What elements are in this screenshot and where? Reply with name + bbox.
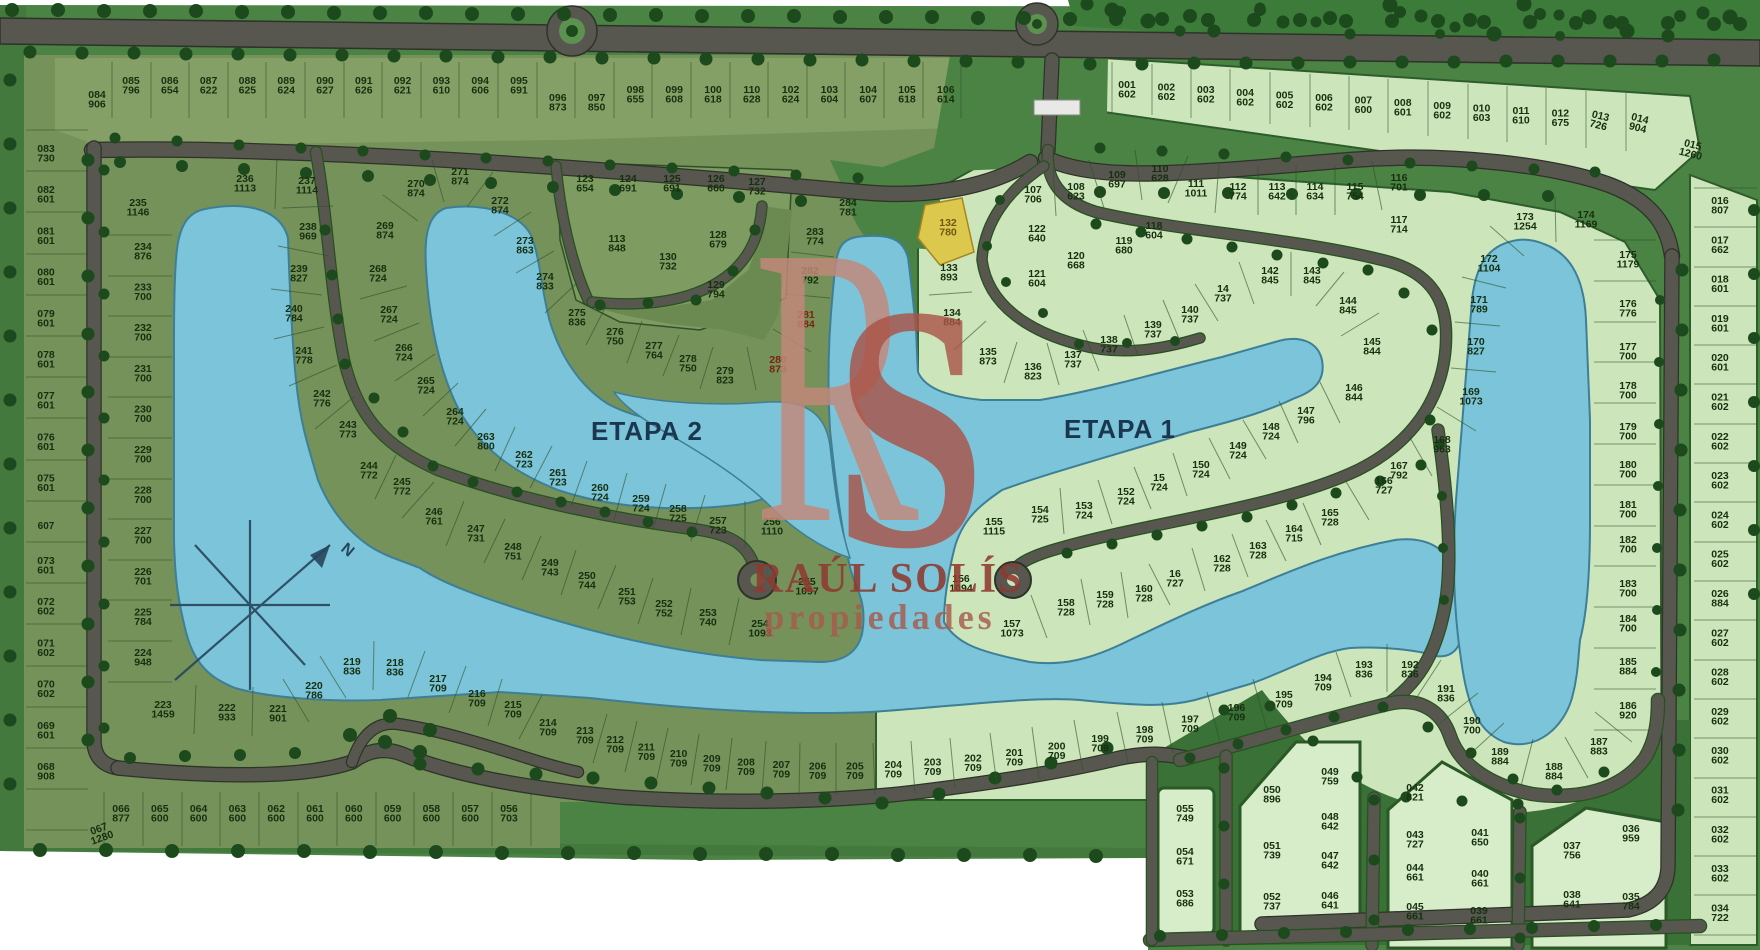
svg-text:1731254: 1731254 — [1513, 211, 1537, 233]
svg-text:168963: 168963 — [1433, 434, 1451, 456]
svg-text:076601: 076601 — [37, 431, 55, 453]
svg-text:064600: 064600 — [190, 803, 208, 825]
svg-text:234876: 234876 — [134, 241, 152, 263]
svg-text:230700: 230700 — [134, 403, 152, 425]
svg-text:215709: 215709 — [504, 699, 522, 721]
svg-text:142845: 142845 — [1261, 265, 1279, 287]
svg-text:065600: 065600 — [151, 803, 169, 825]
svg-text:035784: 035784 — [1622, 891, 1640, 913]
svg-text:113642: 113642 — [1268, 181, 1286, 203]
svg-text:090627: 090627 — [316, 75, 334, 97]
svg-text:184700: 184700 — [1619, 613, 1637, 635]
svg-text:233700: 233700 — [134, 282, 152, 304]
svg-text:088625: 088625 — [239, 75, 257, 97]
svg-text:059600: 059600 — [384, 803, 402, 825]
svg-text:242776: 242776 — [313, 388, 331, 410]
svg-text:012675: 012675 — [1552, 108, 1570, 130]
svg-text:054671: 054671 — [1176, 846, 1194, 868]
svg-text:276750: 276750 — [606, 326, 624, 348]
svg-text:1551115: 1551115 — [983, 516, 1005, 538]
svg-text:009602: 009602 — [1433, 100, 1451, 122]
svg-text:243773: 243773 — [339, 419, 357, 441]
svg-text:024602: 024602 — [1711, 509, 1729, 531]
svg-text:082601: 082601 — [37, 184, 55, 206]
svg-text:201709: 201709 — [1006, 747, 1024, 769]
svg-text:182700: 182700 — [1619, 534, 1637, 556]
svg-text:114634: 114634 — [1306, 181, 1324, 203]
svg-text:008601: 008601 — [1394, 97, 1412, 119]
svg-text:045661: 045661 — [1406, 901, 1424, 923]
svg-text:202709: 202709 — [964, 752, 982, 774]
svg-text:097850: 097850 — [588, 92, 606, 114]
svg-text:2371114: 2371114 — [296, 175, 318, 197]
svg-text:055749: 055749 — [1176, 803, 1194, 825]
svg-text:245772: 245772 — [393, 476, 411, 498]
svg-text:261723: 261723 — [549, 467, 567, 489]
svg-text:095691: 095691 — [510, 75, 528, 97]
svg-text:077601: 077601 — [37, 390, 55, 412]
svg-text:029602: 029602 — [1711, 706, 1729, 728]
svg-text:188884: 188884 — [1545, 761, 1563, 783]
svg-text:167792: 167792 — [1390, 460, 1408, 482]
svg-text:196709: 196709 — [1228, 702, 1246, 724]
svg-text:110628: 110628 — [743, 84, 761, 106]
svg-text:033602: 033602 — [1711, 863, 1729, 885]
svg-text:239827: 239827 — [290, 263, 308, 285]
svg-text:propiedades: propiedades — [764, 597, 995, 637]
svg-text:032602: 032602 — [1711, 824, 1729, 846]
svg-text:198709: 198709 — [1136, 724, 1154, 746]
svg-text:091626: 091626 — [355, 75, 373, 97]
svg-text:228700: 228700 — [134, 485, 152, 507]
svg-text:160728: 160728 — [1135, 583, 1153, 605]
svg-text:117714: 117714 — [1390, 214, 1408, 236]
svg-text:085796: 085796 — [122, 75, 140, 97]
svg-text:266724: 266724 — [395, 342, 413, 364]
svg-text:1751179: 1751179 — [1617, 249, 1640, 271]
svg-text:124691: 124691 — [619, 173, 637, 195]
svg-text:252752: 252752 — [655, 598, 673, 620]
svg-text:179700: 179700 — [1619, 421, 1637, 443]
svg-text:060600: 060600 — [345, 803, 363, 825]
svg-text:096873: 096873 — [549, 92, 567, 114]
svg-text:241778: 241778 — [295, 345, 313, 367]
svg-text:094606: 094606 — [471, 75, 489, 97]
svg-text:084906: 084906 — [88, 89, 106, 111]
svg-text:227700: 227700 — [134, 525, 152, 547]
svg-text:069601: 069601 — [37, 720, 55, 742]
svg-text:244772: 244772 — [360, 460, 378, 482]
svg-text:278750: 278750 — [679, 353, 697, 375]
svg-text:002602: 002602 — [1158, 82, 1176, 104]
svg-text:058600: 058600 — [423, 803, 441, 825]
svg-text:229700: 229700 — [134, 444, 152, 466]
svg-text:027602: 027602 — [1711, 627, 1729, 649]
svg-text:265724: 265724 — [417, 375, 435, 397]
svg-text:149724: 149724 — [1229, 440, 1247, 462]
svg-text:021602: 021602 — [1711, 392, 1729, 414]
svg-text:066877: 066877 — [112, 803, 130, 825]
svg-text:051739: 051739 — [1263, 840, 1281, 862]
svg-text:107706: 107706 — [1024, 184, 1042, 206]
svg-text:207709: 207709 — [773, 759, 791, 781]
svg-text:263800: 263800 — [477, 431, 495, 453]
svg-text:106614: 106614 — [937, 84, 955, 106]
svg-text:102624: 102624 — [782, 84, 800, 106]
svg-text:018601: 018601 — [1711, 274, 1729, 296]
svg-text:213709: 213709 — [576, 725, 594, 747]
svg-text:025602: 025602 — [1711, 549, 1729, 571]
svg-text:279823: 279823 — [716, 365, 734, 387]
svg-text:218836: 218836 — [386, 657, 404, 679]
svg-text:022602: 022602 — [1711, 431, 1729, 453]
svg-text:056703: 056703 — [500, 803, 518, 825]
svg-text:081601: 081601 — [37, 225, 55, 247]
svg-text:203709: 203709 — [924, 756, 942, 778]
svg-text:197709: 197709 — [1181, 714, 1199, 736]
svg-text:262723: 262723 — [515, 449, 533, 471]
svg-text:079601: 079601 — [37, 308, 55, 330]
svg-text:119680: 119680 — [1115, 235, 1133, 257]
svg-text:1111011: 1111011 — [1185, 178, 1208, 200]
svg-text:046641: 046641 — [1321, 890, 1339, 912]
svg-text:044661: 044661 — [1406, 862, 1424, 884]
svg-text:260724: 260724 — [591, 482, 609, 504]
svg-text:078601: 078601 — [37, 349, 55, 371]
svg-text:152724: 152724 — [1117, 486, 1135, 508]
svg-text:232700: 232700 — [134, 322, 152, 344]
svg-text:221901: 221901 — [269, 703, 287, 725]
svg-text:208709: 208709 — [737, 757, 755, 779]
svg-text:165728: 165728 — [1321, 507, 1339, 529]
svg-text:010603: 010603 — [1473, 102, 1491, 124]
svg-text:116701: 116701 — [1390, 172, 1408, 194]
svg-text:040661: 040661 — [1471, 868, 1489, 890]
svg-text:2231459: 2231459 — [151, 699, 175, 721]
svg-text:248751: 248751 — [504, 541, 522, 563]
svg-text:031602: 031602 — [1711, 785, 1729, 807]
svg-text:083730: 083730 — [37, 143, 55, 165]
svg-text:277764: 277764 — [645, 340, 663, 362]
svg-text:247731: 247731 — [467, 523, 485, 545]
svg-text:607: 607 — [38, 521, 55, 532]
svg-text:181700: 181700 — [1619, 499, 1637, 521]
svg-text:180700: 180700 — [1619, 459, 1637, 481]
svg-text:222933: 222933 — [218, 702, 236, 724]
svg-text:272874: 272874 — [491, 195, 509, 217]
svg-text:103604: 103604 — [821, 84, 839, 106]
svg-text:224948: 224948 — [134, 647, 152, 669]
svg-text:007600: 007600 — [1355, 95, 1373, 117]
svg-text:086654: 086654 — [161, 75, 179, 97]
svg-text:214709: 214709 — [539, 717, 557, 739]
svg-text:1741169: 1741169 — [1575, 209, 1598, 231]
svg-text:193836: 193836 — [1355, 659, 1373, 681]
svg-text:259724: 259724 — [632, 493, 650, 515]
svg-text:126660: 126660 — [707, 173, 725, 195]
svg-text:258725: 258725 — [669, 503, 687, 525]
svg-text:1721104: 1721104 — [1478, 253, 1501, 275]
svg-text:206709: 206709 — [809, 760, 827, 782]
svg-text:001602: 001602 — [1118, 79, 1136, 101]
svg-text:125691: 125691 — [663, 173, 681, 195]
svg-text:RAÚL SOLÍS: RAÚL SOLÍS — [753, 555, 1024, 602]
svg-text:191836: 191836 — [1437, 683, 1455, 705]
svg-text:019601: 019601 — [1711, 313, 1729, 335]
svg-text:216709: 216709 — [468, 688, 486, 710]
svg-text:140737: 140737 — [1181, 304, 1199, 326]
svg-text:275836: 275836 — [568, 307, 586, 329]
svg-text:189884: 189884 — [1491, 746, 1509, 768]
svg-text:052737: 052737 — [1263, 891, 1281, 913]
svg-text:108623: 108623 — [1067, 181, 1085, 203]
svg-text:264724: 264724 — [446, 406, 464, 428]
svg-text:183700: 183700 — [1619, 578, 1637, 600]
svg-text:146844: 146844 — [1345, 382, 1363, 404]
svg-text:006602: 006602 — [1315, 92, 1333, 114]
svg-text:217709: 217709 — [429, 673, 447, 695]
svg-text:075601: 075601 — [37, 473, 55, 495]
svg-text:128679: 128679 — [709, 229, 727, 251]
svg-text:050896: 050896 — [1263, 784, 1281, 806]
svg-text:038641: 038641 — [1563, 889, 1581, 911]
svg-text:ETAPA 2: ETAPA 2 — [591, 416, 703, 446]
svg-text:153724: 153724 — [1075, 500, 1093, 522]
svg-text:109697: 109697 — [1108, 169, 1126, 191]
svg-text:269874: 269874 — [376, 220, 394, 242]
svg-text:138737: 138737 — [1100, 334, 1118, 356]
svg-text:100618: 100618 — [704, 84, 722, 106]
svg-text:144845: 144845 — [1339, 295, 1357, 317]
svg-text:271874: 271874 — [451, 166, 469, 188]
svg-text:041650: 041650 — [1471, 827, 1489, 849]
svg-text:154725: 154725 — [1031, 504, 1049, 526]
svg-text:005602: 005602 — [1276, 89, 1294, 111]
svg-text:068908: 068908 — [37, 761, 55, 783]
svg-text:246761: 246761 — [425, 506, 443, 528]
svg-text:187883: 187883 — [1590, 736, 1608, 758]
svg-text:048642: 048642 — [1321, 811, 1339, 833]
svg-text:143845: 143845 — [1303, 265, 1321, 287]
svg-text:190700: 190700 — [1463, 715, 1481, 737]
svg-text:176776: 176776 — [1619, 298, 1637, 320]
svg-text:042821: 042821 — [1406, 782, 1424, 804]
svg-text:120668: 120668 — [1067, 250, 1085, 272]
svg-text:2351146: 2351146 — [127, 197, 150, 219]
svg-text:137737: 137737 — [1064, 349, 1082, 371]
svg-text:071602: 071602 — [37, 637, 55, 659]
svg-text:163728: 163728 — [1249, 540, 1267, 562]
svg-text:039661: 039661 — [1470, 905, 1488, 927]
svg-text:200709: 200709 — [1048, 741, 1066, 763]
svg-text:016807: 016807 — [1711, 195, 1729, 217]
svg-text:212709: 212709 — [606, 734, 624, 756]
svg-text:061600: 061600 — [306, 803, 324, 825]
svg-text:162728: 162728 — [1213, 553, 1231, 575]
svg-text:003602: 003602 — [1197, 84, 1215, 106]
svg-text:099608: 099608 — [665, 84, 683, 106]
svg-text:195709: 195709 — [1275, 689, 1293, 711]
svg-text:210709: 210709 — [670, 748, 688, 770]
svg-text:209709: 209709 — [703, 753, 721, 775]
svg-text:171789: 171789 — [1470, 294, 1488, 316]
svg-text:220786: 220786 — [305, 680, 323, 702]
svg-text:053686: 053686 — [1176, 888, 1194, 910]
svg-text:136823: 136823 — [1024, 361, 1042, 383]
svg-text:2361113: 2361113 — [234, 173, 256, 195]
svg-text:113848: 113848 — [608, 233, 626, 255]
svg-text:199709: 199709 — [1091, 733, 1109, 755]
svg-text:089624: 089624 — [277, 75, 295, 97]
svg-text:145844: 145844 — [1363, 336, 1381, 358]
svg-text:159728: 159728 — [1096, 589, 1114, 611]
svg-text:118604: 118604 — [1145, 220, 1163, 242]
svg-text:274833: 274833 — [536, 271, 554, 293]
svg-text:093610: 093610 — [433, 75, 451, 97]
svg-text:240784: 240784 — [285, 303, 303, 325]
svg-text:092621: 092621 — [394, 75, 412, 97]
svg-text:192836: 192836 — [1401, 659, 1419, 681]
svg-text:030602: 030602 — [1711, 745, 1729, 767]
svg-text:194709: 194709 — [1314, 672, 1332, 694]
svg-text:123654: 123654 — [576, 173, 594, 195]
svg-text:205709: 205709 — [846, 760, 864, 782]
svg-text:043727: 043727 — [1406, 829, 1424, 851]
svg-text:257723: 257723 — [709, 515, 727, 537]
svg-text:129794: 129794 — [707, 279, 725, 301]
svg-text:250744: 250744 — [578, 570, 596, 592]
svg-text:219836: 219836 — [343, 656, 361, 678]
svg-text:063600: 063600 — [229, 803, 247, 825]
svg-text:112774: 112774 — [1229, 181, 1247, 203]
svg-text:011610: 011610 — [1512, 105, 1530, 127]
svg-text:062600: 062600 — [267, 803, 285, 825]
svg-text:253740: 253740 — [699, 607, 717, 629]
svg-text:121604: 121604 — [1028, 268, 1046, 290]
svg-text:178700: 178700 — [1619, 380, 1637, 402]
svg-text:1571073: 1571073 — [1000, 618, 1024, 640]
svg-text:270874: 270874 — [407, 178, 425, 200]
svg-text:072602: 072602 — [37, 596, 55, 618]
svg-text:115754: 115754 — [1346, 181, 1364, 203]
svg-text:047642: 047642 — [1321, 850, 1339, 872]
svg-text:251753: 251753 — [618, 586, 636, 608]
svg-text:ETAPA 1: ETAPA 1 — [1064, 414, 1176, 444]
svg-text:130732: 130732 — [659, 251, 677, 273]
svg-text:164715: 164715 — [1285, 523, 1303, 545]
svg-text:186920: 186920 — [1619, 700, 1637, 722]
svg-text:098655: 098655 — [627, 84, 645, 106]
svg-text:231700: 231700 — [134, 363, 152, 385]
svg-text:267724: 267724 — [380, 304, 398, 326]
svg-text:204709: 204709 — [884, 759, 902, 781]
svg-text:273863: 273863 — [516, 235, 534, 257]
svg-text:017662: 017662 — [1711, 234, 1729, 256]
svg-text:268724: 268724 — [369, 263, 387, 285]
svg-text:225784: 225784 — [134, 606, 152, 628]
svg-text:122640: 122640 — [1028, 223, 1046, 245]
svg-text:087622: 087622 — [200, 75, 218, 97]
svg-text:170827: 170827 — [1467, 336, 1485, 358]
svg-text:026884: 026884 — [1711, 588, 1729, 610]
svg-text:110628: 110628 — [1151, 163, 1169, 185]
svg-text:1691073: 1691073 — [1459, 386, 1483, 408]
svg-text:073601: 073601 — [37, 555, 55, 577]
svg-text:034722: 034722 — [1711, 902, 1729, 924]
svg-text:049759: 049759 — [1321, 766, 1339, 788]
svg-text:028602: 028602 — [1711, 667, 1729, 689]
svg-text:020601: 020601 — [1711, 352, 1729, 374]
svg-text:211709: 211709 — [638, 742, 656, 764]
svg-text:158728: 158728 — [1057, 597, 1075, 619]
svg-text:238969: 238969 — [299, 221, 317, 243]
svg-text:166727: 166727 — [1375, 475, 1393, 497]
svg-text:004602: 004602 — [1236, 87, 1254, 109]
svg-text:037756: 037756 — [1563, 840, 1581, 862]
svg-text:104607: 104607 — [859, 84, 877, 106]
svg-text:080601: 080601 — [37, 267, 55, 289]
svg-text:150724: 150724 — [1192, 459, 1210, 481]
svg-text:105618: 105618 — [898, 84, 916, 106]
svg-text:249743: 249743 — [541, 557, 559, 579]
svg-text:148724: 148724 — [1262, 421, 1280, 443]
svg-text:023602: 023602 — [1711, 470, 1729, 492]
svg-text:185884: 185884 — [1619, 656, 1637, 678]
svg-text:139737: 139737 — [1144, 319, 1162, 341]
svg-text:147796: 147796 — [1297, 405, 1315, 427]
svg-text:177700: 177700 — [1619, 341, 1637, 363]
svg-text:036959: 036959 — [1622, 823, 1640, 845]
svg-text:226701: 226701 — [134, 566, 152, 588]
svg-text:070602: 070602 — [37, 679, 55, 701]
svg-text:057600: 057600 — [461, 803, 479, 825]
